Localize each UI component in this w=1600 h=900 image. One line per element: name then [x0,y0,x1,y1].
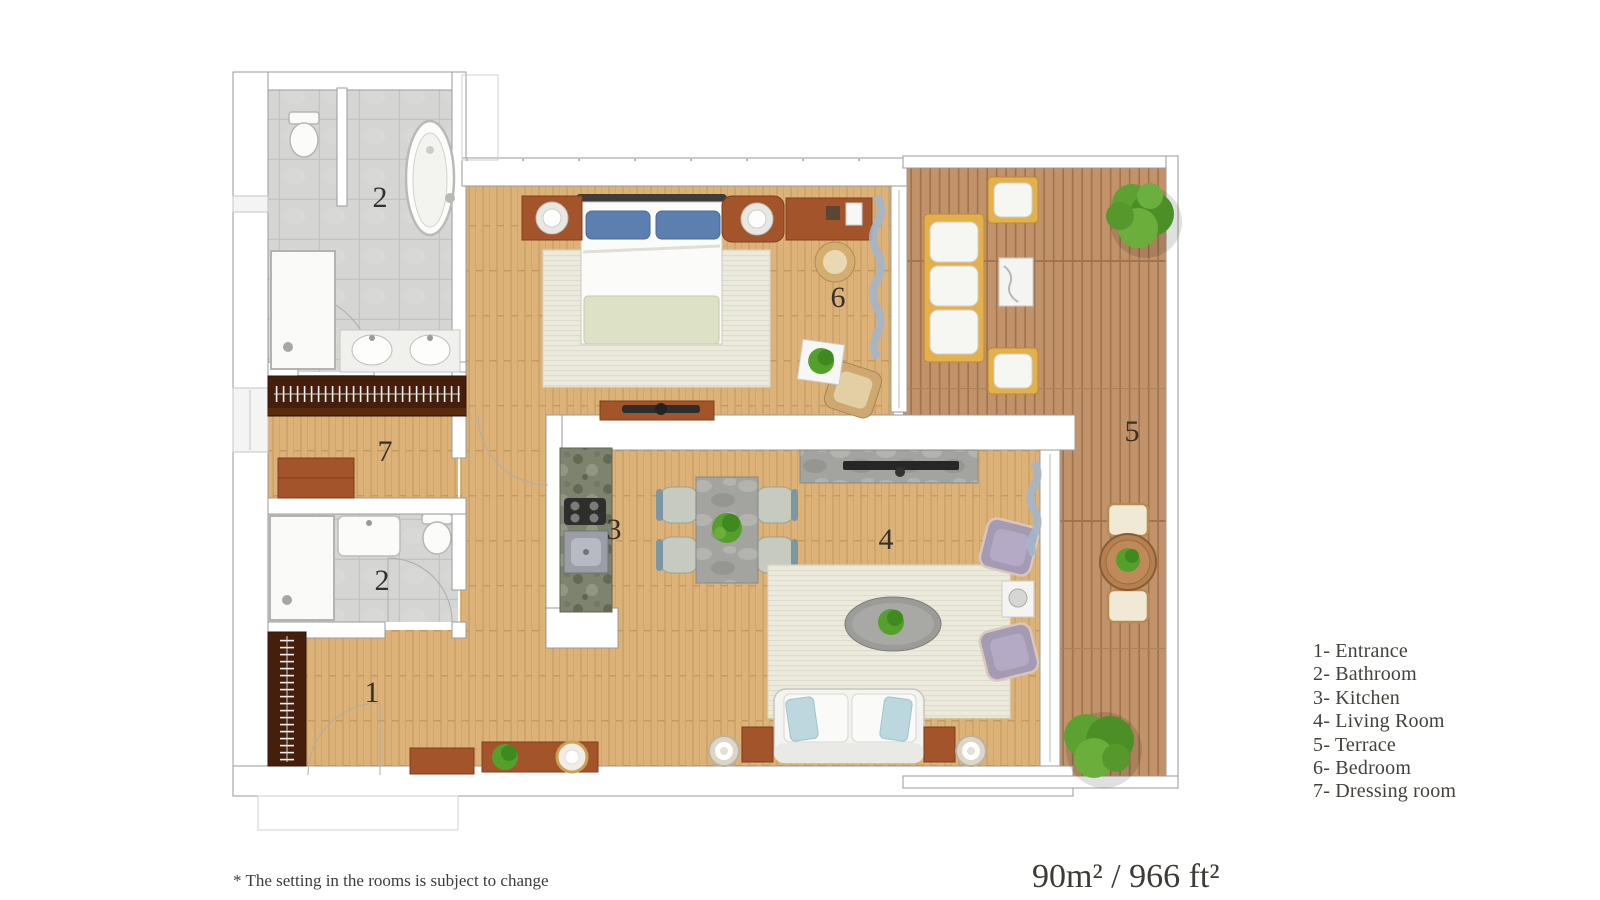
room-number-bathroom-upper: 2 [373,181,388,214]
outdoor-chair [1108,590,1148,622]
tv-console [800,450,978,483]
nightstand [722,196,784,242]
outdoor-chair [988,177,1038,223]
dining-chair [756,487,798,523]
wardrobe [268,632,306,766]
window [233,196,268,212]
dresser [278,458,354,498]
double-sink [340,330,460,372]
blanket [584,296,719,344]
legend-item-entrance: 1- Entrance [1313,640,1456,663]
shower [271,251,335,369]
kitchen-sink [564,531,608,573]
floor-lamp [956,736,986,766]
plant [712,513,742,543]
room-number-bathroom-lower: 2 [375,564,390,597]
room-number-bedroom: 6 [831,281,846,314]
bistro-set [1100,504,1156,622]
legend-item-terrace: 5- Terrace [1313,734,1456,757]
coffee-table [845,597,941,651]
room-number-kitchen: 3 [607,513,622,546]
kitchen [560,448,612,612]
armchair [978,621,1041,682]
outdoor-sofa [924,214,984,362]
room-number-living-room: 4 [879,523,894,556]
tv-console [600,401,714,420]
floor-lamp [709,736,739,766]
side-table [924,727,955,762]
bathtub [406,121,455,235]
console-table [482,742,598,772]
room-number-terrace: 5 [1125,415,1140,448]
footnote: * The setting in the rooms is subject to… [233,871,549,891]
kitchen-counter [560,448,612,612]
bed [576,194,727,344]
toilet [289,112,319,124]
shower [270,516,334,620]
dining-chair [656,537,698,573]
toilet [290,123,318,157]
outdoor-chair [988,348,1038,394]
dining-chair [656,487,698,523]
console-table [410,748,474,774]
legend-item-dressing-room: 7- Dressing room [1313,780,1456,803]
sink [338,516,400,556]
pillow [879,696,913,741]
side-table [742,727,773,762]
pillow [785,696,819,741]
room-legend: 1- Entrance 2- Bathroom 3- Kitchen 4- Li… [1313,640,1456,804]
legend-item-bathroom: 2- Bathroom [1313,663,1456,686]
area-label: 90m² / 966 ft² [1032,858,1220,896]
legend-item-living-room: 4- Living Room [1313,710,1456,733]
nightstand [522,196,582,240]
legend-item-bedroom: 6- Bedroom [1313,757,1456,780]
pillow [586,211,650,239]
pillow [656,211,720,239]
side-table [1002,581,1034,617]
outdoor-coffee-table [999,258,1033,306]
side-table [797,339,844,384]
wardrobe [268,376,466,416]
room-number-entrance: 1 [365,676,380,709]
outdoor-chair [1108,504,1148,536]
sofa [774,689,924,763]
hallway-floor [460,412,555,644]
toilet [422,514,452,554]
room-number-dressing-room: 7 [378,435,393,468]
legend-item-kitchen: 3- Kitchen [1313,687,1456,710]
stove [564,498,606,525]
